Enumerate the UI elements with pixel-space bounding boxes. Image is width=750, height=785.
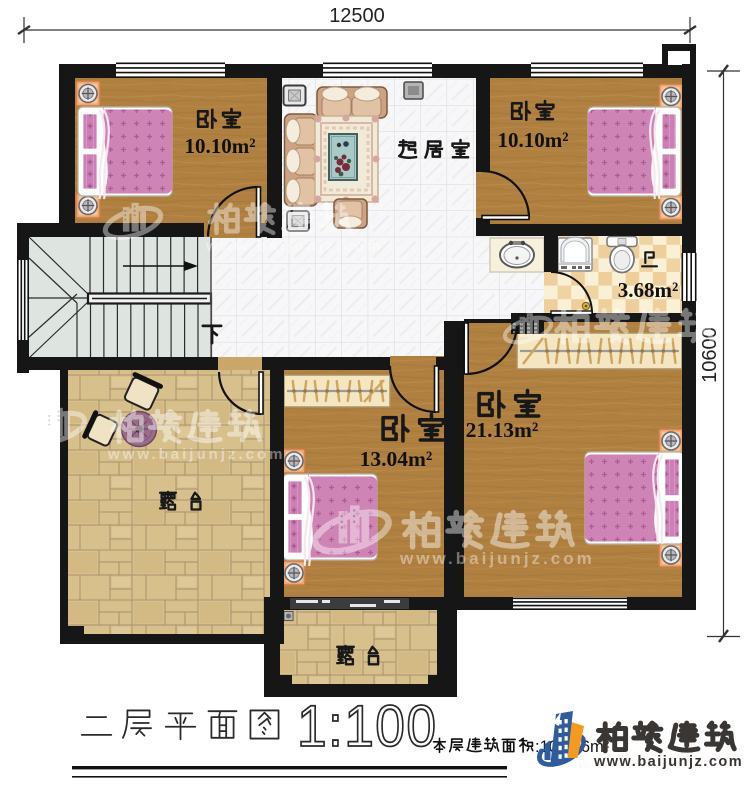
svg-text:21.13m²: 21.13m² [466, 418, 539, 442]
svg-text:12500: 12500 [329, 5, 385, 27]
svg-text:10.10m²: 10.10m² [497, 128, 568, 152]
svg-text:www.baijunjz.com: www.baijunjz.com [107, 446, 285, 463]
svg-text:www.baijunjz.com: www.baijunjz.com [399, 549, 595, 568]
svg-text:10.10m²: 10.10m² [184, 134, 255, 158]
svg-text:www.baijunjz.com: www.baijunjz.com [593, 754, 743, 770]
svg-text:1:100: 1:100 [297, 694, 437, 759]
svg-text:3.68m²: 3.68m² [618, 278, 679, 302]
svg-text:www.baijunjz.com: www.baijunjz.com [205, 238, 383, 255]
svg-text:13.04m²: 13.04m² [360, 447, 433, 471]
